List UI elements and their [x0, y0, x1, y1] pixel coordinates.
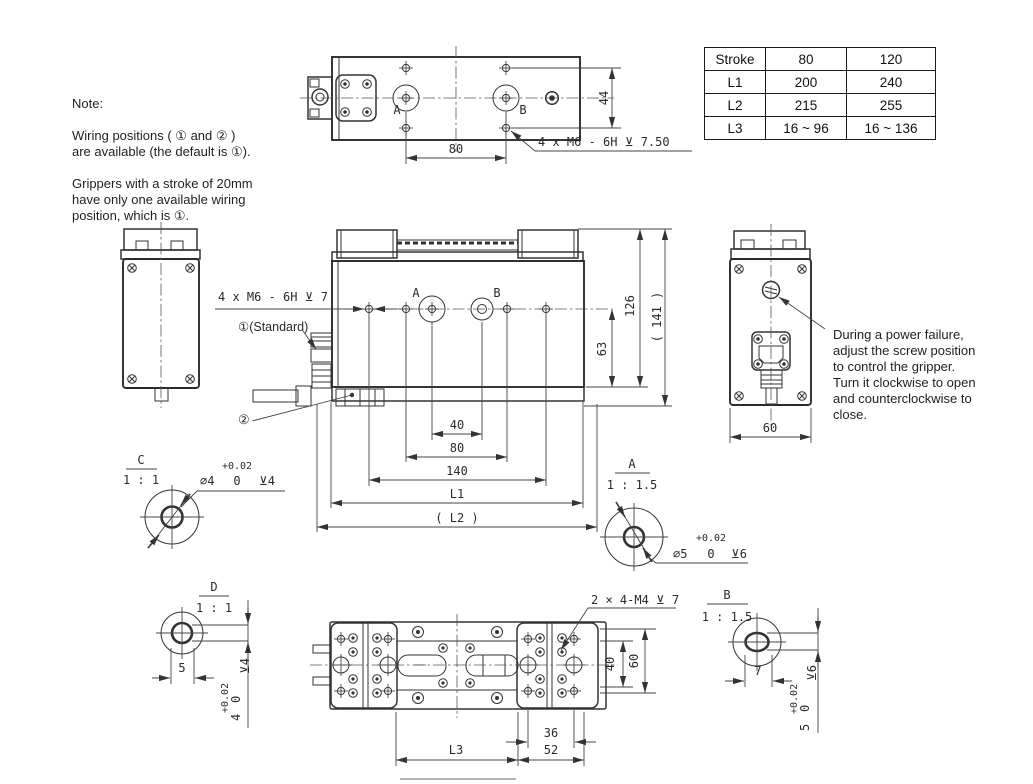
power-note-line: adjust the screw position — [833, 343, 1033, 359]
detail-a-dia: ∅5 — [673, 547, 687, 561]
detail-c: C 1 : 1 +0.02 ∅4 0 ⊻4 — [123, 453, 285, 549]
power-note-line: During a power failure, — [833, 327, 1033, 343]
bottom-dim-l3: L3 — [449, 743, 463, 757]
detail-c-scale: 1 : 1 — [123, 473, 159, 487]
front-wiring-pos2: ② — [238, 412, 250, 427]
cell-l2-120: 255 — [847, 94, 936, 117]
cell-l2-label: L2 — [705, 94, 766, 117]
detail-c-tol-upper: +0.02 — [222, 461, 252, 472]
detail-b-dim-7: 7 — [754, 664, 761, 678]
detail-d-nominal: 4 — [229, 714, 243, 721]
cell-l3-label: L3 — [705, 117, 766, 140]
note-line: Wiring positions ( ① and ② ) — [72, 128, 302, 144]
front-dim-140: 140 — [446, 464, 468, 478]
cell-l2-80: 215 — [766, 94, 847, 117]
bottom-dim-40: 40 — [603, 657, 617, 671]
note-block: Note: Wiring positions ( ① and ② ) are a… — [72, 96, 302, 224]
detail-a-depth: ⊻6 — [731, 547, 747, 561]
front-wiring-pos1: ①(Standard) — [238, 320, 308, 334]
detail-a-tol-lower: 0 — [707, 547, 714, 561]
front-dim-l2: ( L2 ) — [435, 511, 478, 525]
bottom-view: 2 × 4-M4 ⊻ 7 40 60 L3 52 36 — [310, 593, 679, 766]
table-row-l1: L1 200 240 — [705, 71, 936, 94]
cell-stroke-label: Stroke — [705, 48, 766, 71]
table-row-stroke: Stroke 80 120 — [705, 48, 936, 71]
top-view: 80 44 4 x M6 - 6H ⊻ 7.50 A B — [300, 46, 692, 164]
front-hole-a-label: A — [412, 286, 420, 300]
detail-c-dia: ∅4 — [200, 474, 214, 488]
bottom-dim-52: 52 — [544, 743, 558, 757]
detail-c-depth: ⊻4 — [259, 474, 275, 488]
detail-d-label: D — [210, 580, 217, 594]
detail-a-label: A — [628, 457, 636, 471]
cell-l1-80: 200 — [766, 71, 847, 94]
side-dim-60: 60 — [763, 421, 777, 435]
power-note-line: to control the gripper. — [833, 359, 1033, 375]
front-dim-141: ( 141 ) — [650, 292, 664, 343]
cell-l1-label: L1 — [705, 71, 766, 94]
bottom-thread-callout: 2 × 4-M4 ⊻ 7 — [591, 593, 679, 607]
detail-a: A 1 : 1.5 +0.02 ∅5 0 ⊻6 — [600, 457, 748, 571]
power-failure-note: During a power failure, adjust the screw… — [833, 327, 1033, 423]
note-line: Grippers with a stroke of 20mm — [72, 176, 302, 192]
front-dim-63: 63 — [595, 342, 609, 356]
top-dim-44: 44 — [597, 91, 611, 105]
bottom-dim-60: 60 — [627, 654, 641, 668]
power-note-line: Turn it clockwise to open — [833, 375, 1033, 391]
detail-b-depth: ⊻6 — [805, 665, 819, 681]
detail-d: D 1 : 1 5 ⊻4 +0.02 0 4 — [152, 580, 252, 728]
table-row-l2: L2 215 255 — [705, 94, 936, 117]
front-view: 4 x M6 - 6H ⊻ 7 A B ①(Standard) ② — [215, 229, 672, 532]
detail-b: B 1 : 1.5 7 ⊻6 +0.02 0 5 — [702, 588, 819, 733]
power-note-line: and counterclockwise to — [833, 391, 1033, 407]
cell-l3-80: 16 ~ 96 — [766, 117, 847, 140]
detail-c-label: C — [137, 453, 144, 467]
detail-a-tol-upper: +0.02 — [696, 533, 726, 544]
note-title: Note: — [72, 96, 302, 112]
note-line: position, which is ①. — [72, 208, 302, 224]
detail-a-scale: 1 : 1.5 — [607, 478, 658, 492]
note-line: are available (the default is ①). — [72, 144, 302, 160]
cell-l3-120: 16 ~ 136 — [847, 117, 936, 140]
detail-b-nominal: 5 — [798, 724, 812, 731]
detail-d-depth: ⊻4 — [238, 658, 252, 674]
front-dim-l1: L1 — [450, 487, 464, 501]
front-dim-126: 126 — [623, 295, 637, 317]
detail-b-tol-lower: 0 — [798, 705, 812, 712]
detail-b-label: B — [723, 588, 730, 602]
left-side-view — [121, 222, 200, 408]
top-hole-b-label: B — [519, 103, 526, 117]
top-hole-a-label: A — [393, 103, 401, 117]
cell-stroke-80: 80 — [766, 48, 847, 71]
bottom-dim-36: 36 — [544, 726, 558, 740]
detail-c-tol-lower: 0 — [233, 474, 240, 488]
front-dim-40: 40 — [450, 418, 464, 432]
stroke-spec-table: Stroke 80 120 L1 200 240 L2 215 255 L3 1… — [704, 47, 936, 140]
front-hole-b-label: B — [493, 286, 500, 300]
detail-d-tol-lower: 0 — [229, 696, 243, 703]
cell-l1-120: 240 — [847, 71, 936, 94]
detail-d-scale: 1 : 1 — [196, 601, 232, 615]
table-row-l3: L3 16 ~ 96 16 ~ 136 — [705, 117, 936, 140]
front-dim-80: 80 — [450, 441, 464, 455]
front-thread-callout: 4 x M6 - 6H ⊻ 7 — [218, 290, 328, 304]
top-thread-callout: 4 x M6 - 6H ⊻ 7.50 — [538, 135, 670, 149]
right-side-view: 60 — [730, 224, 825, 443]
note-line: have only one available wiring — [72, 192, 302, 208]
top-dim-80: 80 — [449, 142, 463, 156]
power-note-line: close. — [833, 407, 1033, 423]
detail-d-dim-5: 5 — [178, 661, 185, 675]
cell-stroke-120: 120 — [847, 48, 936, 71]
